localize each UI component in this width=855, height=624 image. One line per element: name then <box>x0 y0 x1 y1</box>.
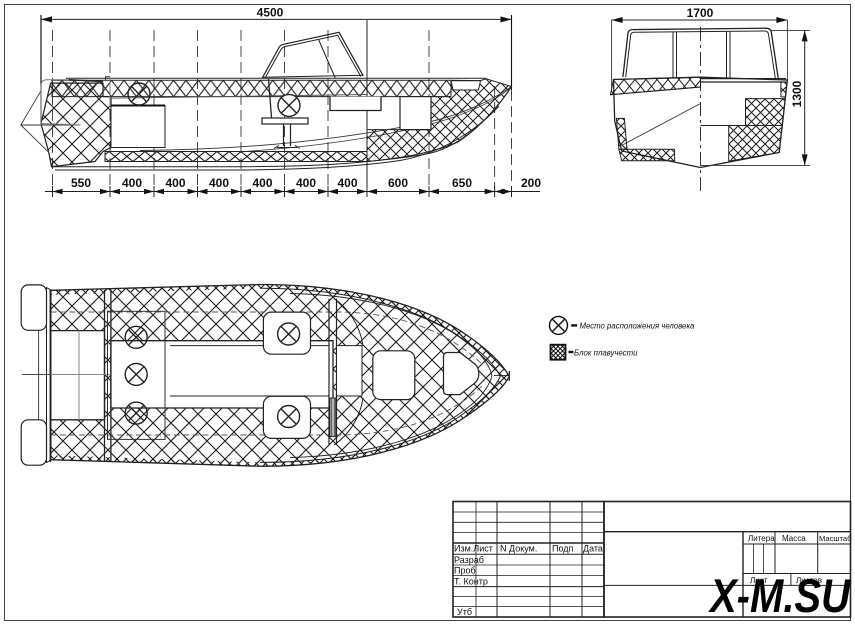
svg-text:1700: 1700 <box>687 6 714 20</box>
svg-text:4500: 4500 <box>257 6 284 20</box>
svg-text:N Докум.: N Докум. <box>500 544 537 554</box>
svg-text:Масштаб: Масштаб <box>819 534 852 543</box>
svg-text:400: 400 <box>209 176 229 190</box>
svg-text:Место расположения человека: Место расположения человека <box>580 322 696 331</box>
svg-text:Блок плавучести: Блок плавучести <box>574 348 638 357</box>
svg-text:Изм.Лист: Изм.Лист <box>454 544 493 554</box>
svg-text:400: 400 <box>252 176 272 190</box>
svg-text:Дата: Дата <box>583 544 603 554</box>
svg-text:550: 550 <box>71 176 91 190</box>
svg-text:Разраб: Разраб <box>454 555 484 565</box>
svg-text:200: 200 <box>521 176 541 190</box>
svg-text:Подп: Подп <box>552 544 574 554</box>
svg-text:1300: 1300 <box>790 80 804 107</box>
svg-text:Утб: Утб <box>457 607 472 617</box>
svg-text:Проб: Проб <box>454 565 476 575</box>
svg-text:400: 400 <box>122 176 142 190</box>
svg-text:600: 600 <box>388 176 408 190</box>
svg-text:Т. Контр: Т. Контр <box>454 576 488 586</box>
svg-text:650: 650 <box>452 176 472 190</box>
svg-text:400: 400 <box>165 176 185 190</box>
svg-text:X-M.SU: X-M.SU <box>707 569 850 622</box>
svg-text:400: 400 <box>296 176 316 190</box>
svg-text:Масса: Масса <box>782 534 806 543</box>
svg-text:400: 400 <box>337 176 357 190</box>
svg-text:Литера: Литера <box>748 534 775 543</box>
